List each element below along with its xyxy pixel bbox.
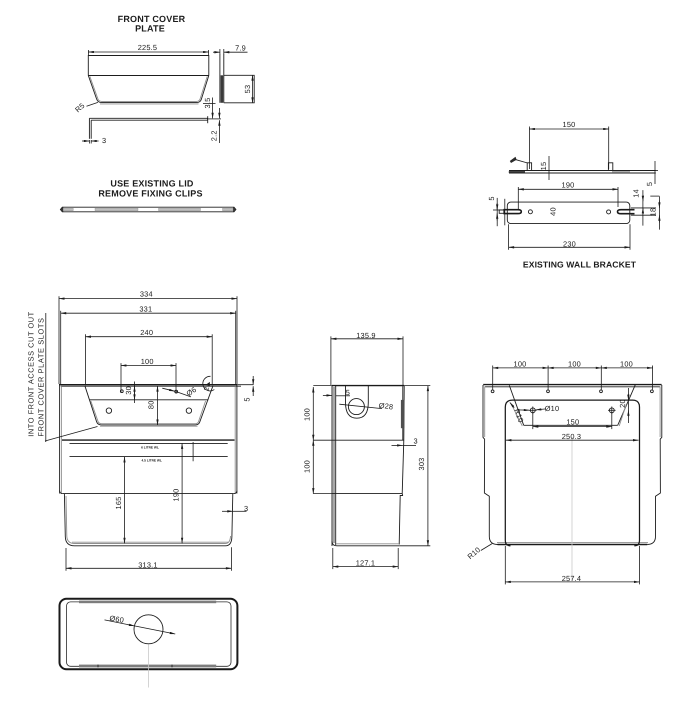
svg-text:313.1: 313.1 <box>138 561 158 570</box>
svg-text:FRONT COVER PLATE SLOTS: FRONT COVER PLATE SLOTS <box>37 317 46 436</box>
svg-text:80: 80 <box>147 400 156 409</box>
svg-text:6 LITRE WL: 6 LITRE WL <box>141 445 159 449</box>
svg-text:150: 150 <box>563 120 576 129</box>
svg-text:190: 190 <box>562 180 575 189</box>
svg-text:5: 5 <box>243 397 252 401</box>
svg-text:250.3: 250.3 <box>562 432 582 441</box>
svg-text:INTO FRONT ACCESS CUT OUT: INTO FRONT ACCESS CUT OUT <box>27 311 36 436</box>
svg-text:PLATE: PLATE <box>135 24 165 34</box>
svg-text:230: 230 <box>563 240 576 249</box>
svg-text:14: 14 <box>632 189 641 198</box>
svg-text:20: 20 <box>618 399 627 408</box>
svg-text:190: 190 <box>171 489 180 502</box>
svg-text:225.5: 225.5 <box>138 43 158 52</box>
svg-text:334: 334 <box>140 289 153 298</box>
svg-text:100: 100 <box>141 357 154 366</box>
svg-text:FRONT COVER: FRONT COVER <box>118 14 186 24</box>
svg-text:5: 5 <box>645 182 654 186</box>
svg-text:18: 18 <box>648 208 657 217</box>
svg-text:100: 100 <box>303 408 312 421</box>
svg-text:3.5: 3.5 <box>203 98 212 109</box>
svg-text:5: 5 <box>487 196 496 200</box>
svg-text:100: 100 <box>514 360 527 369</box>
svg-text:Ø28: Ø28 <box>378 401 394 412</box>
svg-text:303: 303 <box>417 458 426 471</box>
svg-text:5: 5 <box>346 388 350 397</box>
svg-text:240: 240 <box>140 328 153 337</box>
svg-text:100: 100 <box>568 360 581 369</box>
svg-text:7.9: 7.9 <box>235 43 246 52</box>
svg-text:100: 100 <box>620 360 633 369</box>
svg-text:REMOVE FIXING CLIPS: REMOVE FIXING CLIPS <box>98 189 202 199</box>
svg-text:150: 150 <box>566 418 579 427</box>
svg-text:100: 100 <box>303 460 312 473</box>
svg-text:USE EXISTING LID: USE EXISTING LID <box>110 179 194 189</box>
svg-text:3: 3 <box>244 504 248 513</box>
svg-text:4.5 LITRE WL: 4.5 LITRE WL <box>142 458 162 462</box>
svg-text:2.2: 2.2 <box>210 130 219 141</box>
svg-text:257.4: 257.4 <box>562 574 582 583</box>
svg-text:EXISTING WALL BRACKET: EXISTING WALL BRACKET <box>523 260 637 270</box>
svg-text:127.1: 127.1 <box>356 559 376 568</box>
svg-text:40: 40 <box>549 207 558 216</box>
svg-text:165: 165 <box>114 497 123 510</box>
svg-text:3: 3 <box>414 437 418 446</box>
svg-text:Ø10: Ø10 <box>545 404 560 413</box>
svg-text:3: 3 <box>102 136 106 145</box>
svg-text:30: 30 <box>124 386 133 395</box>
svg-text:331: 331 <box>139 305 152 314</box>
svg-text:15: 15 <box>539 162 548 171</box>
svg-text:53: 53 <box>243 85 252 94</box>
svg-text:135.9: 135.9 <box>356 331 376 340</box>
